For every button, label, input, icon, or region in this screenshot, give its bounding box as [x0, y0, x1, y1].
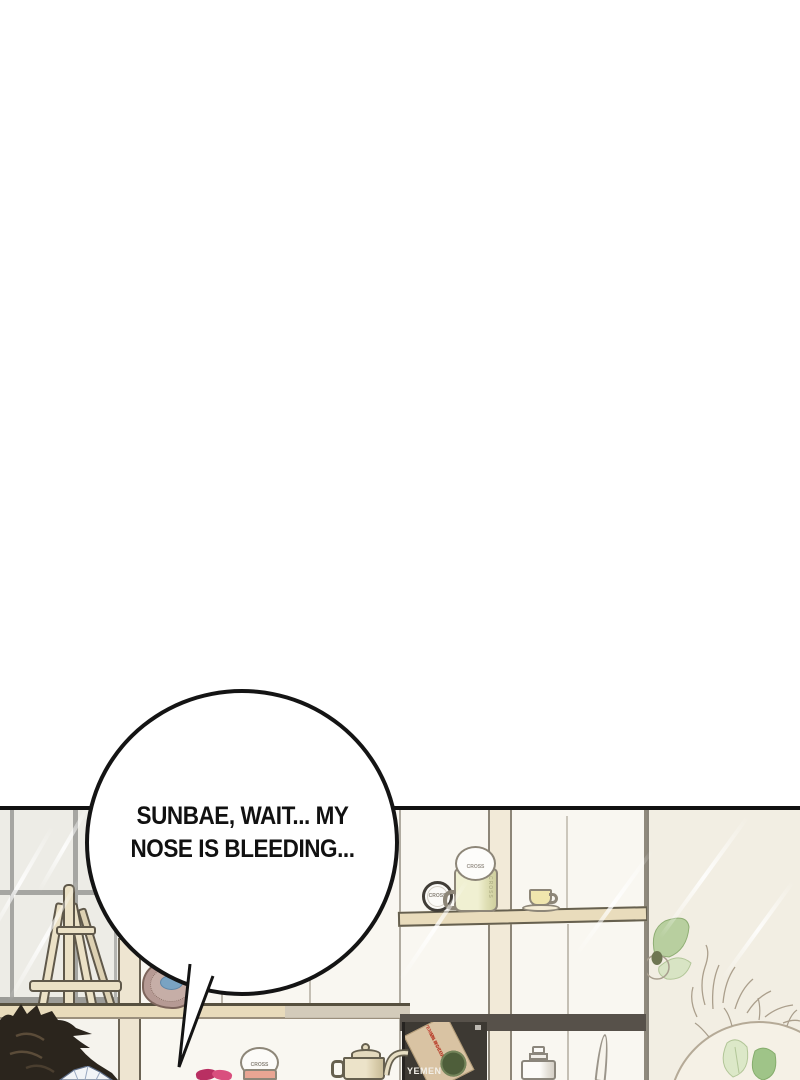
thermos [521, 1060, 556, 1080]
speech-line-2: NOSE IS BLEEDING... [114, 833, 371, 866]
speech-bubble-text: SUNBAE, WAIT... MY NOSE IS BLEEDING... [114, 800, 371, 866]
counter-shelf-shadow [285, 1006, 410, 1018]
mug-sphere-lid: CROSS [455, 846, 496, 881]
panel-edge [566, 816, 568, 916]
shelf-wood-post [488, 810, 512, 1080]
canister-brand-label: CROSS [242, 1062, 277, 1068]
speech-bubble-tail [158, 948, 228, 1074]
easel-tray [29, 980, 122, 992]
comic-panel: CROSS CROSS CROSS YEMEN MOKHA MA A I COF… [0, 0, 800, 1080]
mug-brand-label: CROSS [487, 876, 493, 899]
speech-line-1: SUNBAE, WAIT... MY [114, 800, 371, 833]
dark-shelf-niche: YEMEN MOKHA MA A I COFFEE YEMEN [402, 1022, 487, 1080]
saucer [522, 904, 560, 912]
niche-highlight [475, 1025, 481, 1030]
easel-crossbar [56, 926, 96, 935]
white-cloth [58, 1066, 114, 1080]
panel-edge [399, 810, 401, 1080]
window-frame-vertical [10, 810, 14, 1006]
canister-base [243, 1069, 277, 1080]
kettle-spout [383, 1045, 411, 1078]
mug-lid-brand-label: CROSS [457, 864, 494, 870]
thermos-neck [529, 1053, 548, 1060]
drip-kettle [343, 1057, 385, 1080]
coffee-bag-brand-label: YEMEN [407, 1066, 442, 1076]
plant-mural [647, 905, 800, 1080]
panel-edge [567, 924, 569, 1080]
